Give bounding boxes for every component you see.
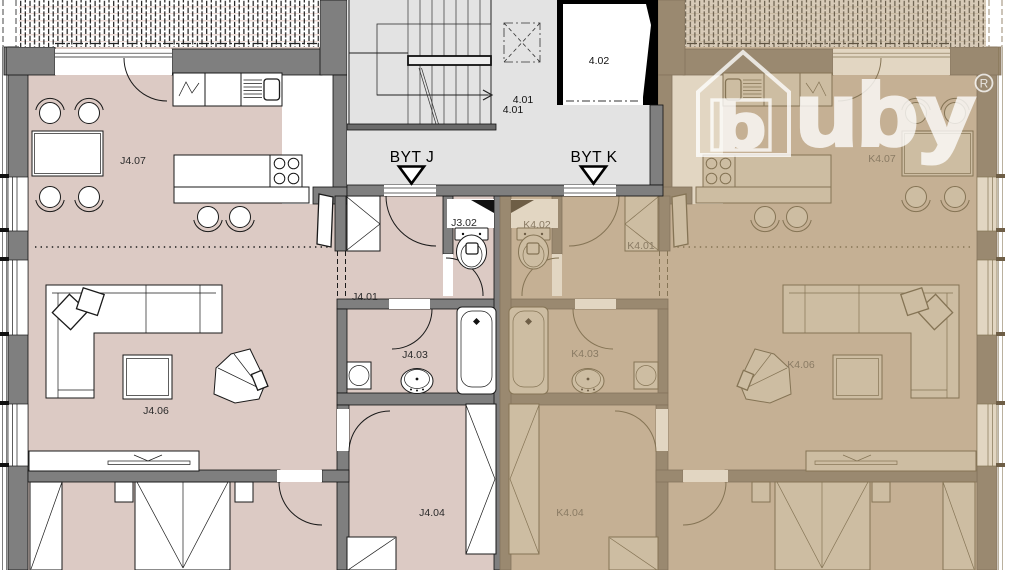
svg-text:4.01: 4.01	[503, 104, 524, 116]
svg-text:J4.06: J4.06	[143, 405, 169, 417]
svg-text:J3.02: J3.02	[451, 217, 477, 229]
svg-text:K4.03: K4.03	[571, 348, 599, 360]
svg-text:J4.04: J4.04	[419, 507, 445, 519]
svg-text:K4.02: K4.02	[523, 219, 551, 231]
svg-text:R: R	[980, 77, 989, 91]
svg-text:J4.03: J4.03	[402, 349, 428, 361]
svg-text:K4.04: K4.04	[556, 507, 584, 519]
svg-text:4.02: 4.02	[589, 55, 610, 67]
svg-text:b: b	[717, 92, 765, 159]
svg-text:uby: uby	[796, 65, 974, 164]
svg-text:K4.06: K4.06	[787, 359, 815, 371]
svg-text:BYT J: BYT J	[390, 149, 434, 166]
svg-text:J4.07: J4.07	[120, 155, 146, 167]
svg-text:K4.07: K4.07	[868, 153, 896, 165]
svg-text:K4.01: K4.01	[627, 240, 655, 252]
svg-text:J4.01: J4.01	[352, 291, 378, 303]
svg-text:BYT K: BYT K	[570, 149, 617, 166]
